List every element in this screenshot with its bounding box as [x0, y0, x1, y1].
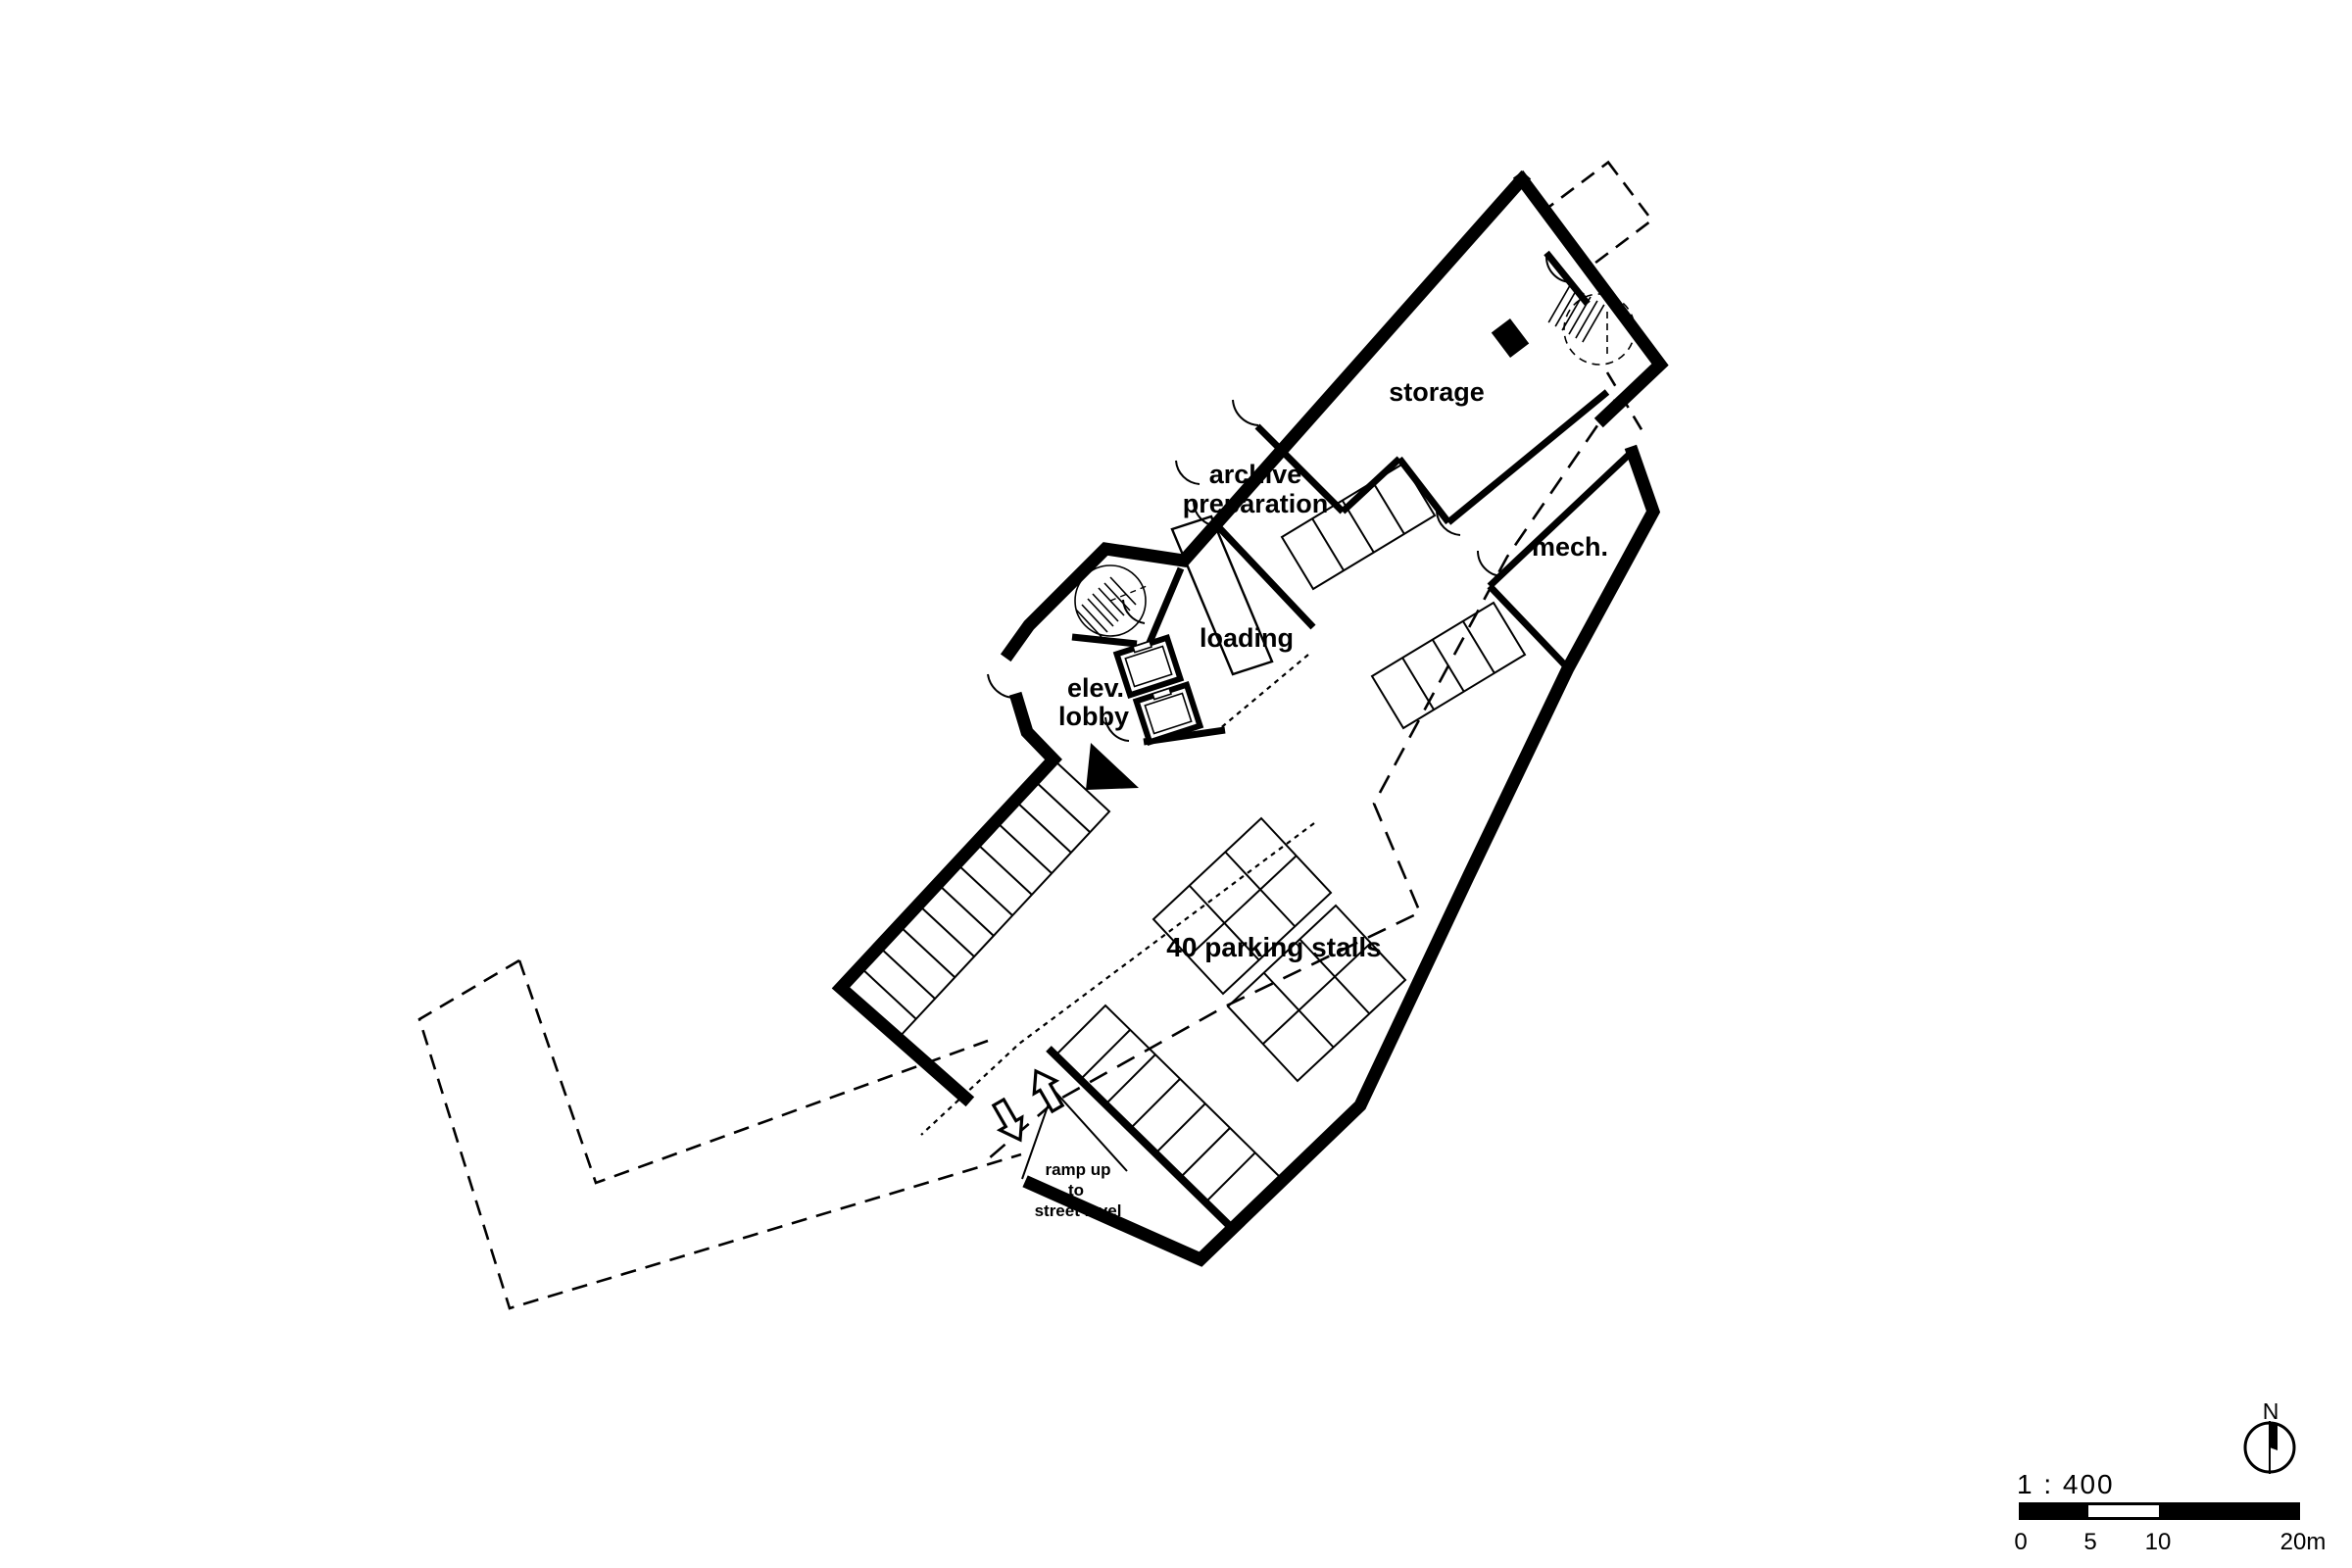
label-loading: loading — [1200, 623, 1294, 653]
parking-row-upper-mid — [1282, 464, 1435, 589]
scale-bar-track — [2019, 1502, 2300, 1520]
label-elev-line2: lobby — [1058, 702, 1129, 731]
wall-chunk — [1492, 318, 1529, 358]
parking-row-south — [1055, 1005, 1280, 1227]
parking-row-mech-side — [1372, 603, 1525, 728]
building-outline — [841, 179, 1660, 1259]
north-arrow-icon: N — [2245, 1398, 2294, 1474]
lobby-corner-wedge — [1086, 743, 1139, 790]
label-storage: storage — [1389, 377, 1485, 407]
scale-tick-10: 10 — [2145, 1529, 2172, 1555]
label-mech: mech. — [1532, 532, 1608, 562]
floor-plan-sheet: storage archive preparation mech. loadin… — [0, 0, 2352, 1568]
parking-stalls — [841, 464, 1525, 1227]
scale-tick-5: 5 — [2083, 1529, 2096, 1555]
scale-ratio: 1 : 400 — [2017, 1469, 2115, 1499]
ramp-arrow-down-icon — [988, 1096, 1032, 1146]
label-ramp-line2: to — [1068, 1181, 1084, 1200]
label-archive-line1: archive — [1209, 460, 1302, 489]
room-labels: storage archive preparation mech. loadin… — [1035, 377, 1608, 1220]
label-ramp-line3: street level — [1035, 1201, 1122, 1220]
label-elev-line1: elev. — [1067, 673, 1124, 703]
label-parking: 40 parking stalls — [1166, 932, 1381, 962]
scale-bar: 1 : 400 0 5 10 20m — [2014, 1469, 2326, 1555]
site-outline-dashed — [419, 960, 1021, 1308]
parking-block-a — [1153, 818, 1331, 994]
scale-bar-white-segment — [2088, 1505, 2159, 1517]
scale-tick-20: 20m — [2280, 1529, 2327, 1555]
floor-plan-drawing: storage archive preparation mech. loadin… — [0, 0, 2352, 1568]
parking-row-northwest — [841, 759, 1109, 1040]
stair-top-right — [1548, 285, 1635, 365]
label-ramp-line1: ramp up — [1045, 1160, 1110, 1179]
site-outline-dashed-inner — [519, 960, 988, 1183]
north-label: N — [2263, 1398, 2279, 1424]
stair-lobby — [1075, 565, 1147, 637]
scale-tick-0: 0 — [2014, 1529, 2027, 1555]
interior-walls — [1049, 253, 1629, 1233]
label-archive-line2: preparation — [1183, 489, 1329, 518]
